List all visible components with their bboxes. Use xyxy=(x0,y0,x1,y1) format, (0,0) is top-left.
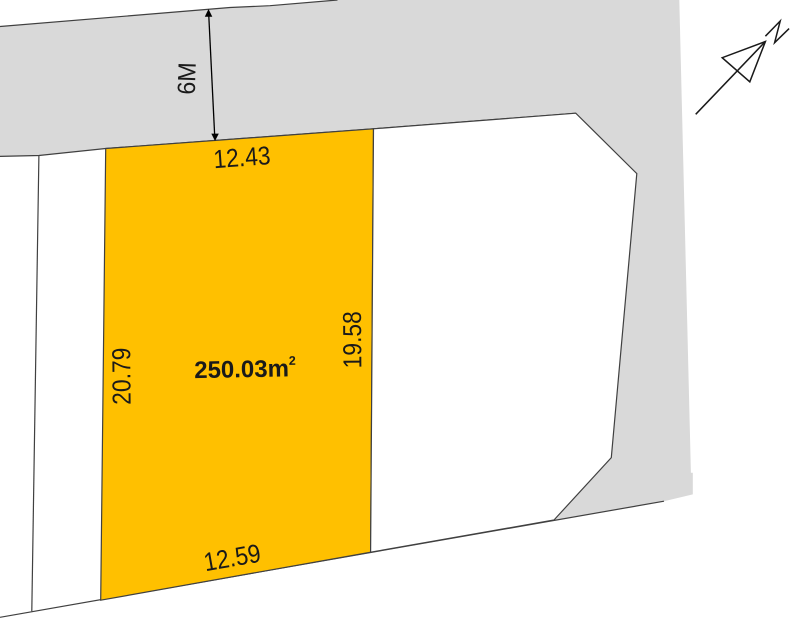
svg-text:250.03m2: 250.03m2 xyxy=(194,354,296,384)
svg-text:6M: 6M xyxy=(173,62,202,95)
svg-text:19.58: 19.58 xyxy=(339,311,368,368)
svg-text:20.79: 20.79 xyxy=(108,347,137,405)
svg-text:12.43: 12.43 xyxy=(212,142,271,175)
